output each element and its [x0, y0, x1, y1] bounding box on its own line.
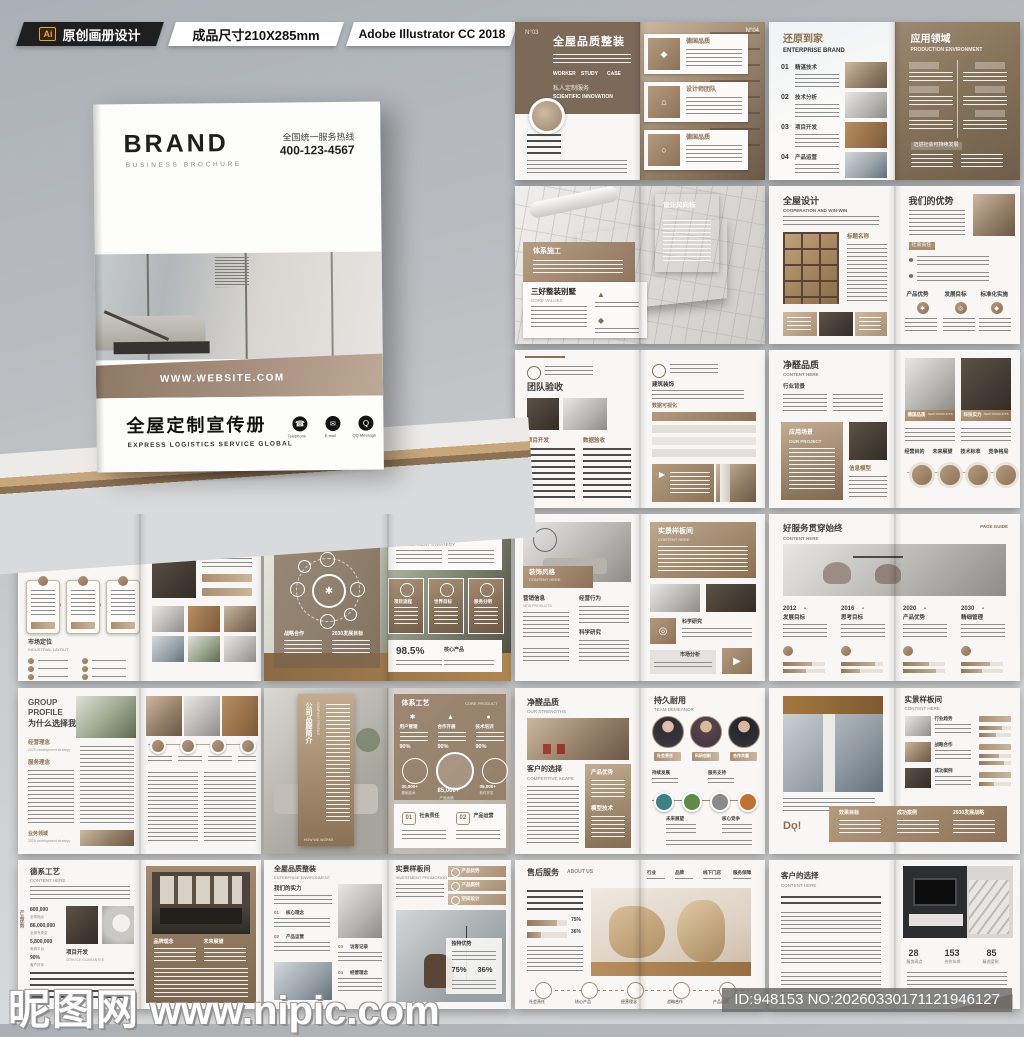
card-title: 设计师团队	[686, 87, 716, 94]
pill-icon	[451, 868, 460, 877]
col-title: 标准化实施	[981, 292, 1009, 298]
page: 28 服务网点 153 合作伙伴 85 精选案例	[895, 860, 1021, 1009]
analysis-card: 市场分析	[650, 650, 716, 674]
stat-label: 全球网点	[30, 915, 44, 919]
box-glyph: ◆	[661, 49, 668, 60]
topbar-software-text: Adobe Illustrator CC 2018	[350, 22, 514, 46]
text-lines	[476, 732, 504, 742]
text-lines	[703, 878, 721, 882]
text-lines	[666, 824, 696, 834]
item-label: 核心理念	[286, 910, 304, 915]
caption-cn: 德国品质	[908, 412, 926, 417]
text-lines	[396, 550, 442, 564]
timeline-axis	[957, 60, 958, 138]
table-header-row	[652, 412, 756, 421]
spread-whole-house-design: 全屋设计 COOPERATION AND WIN-WIN 标题名称 我们的优势 …	[769, 186, 1020, 344]
text-lines	[652, 390, 744, 400]
row-title: 行业趋势	[935, 716, 953, 721]
card-icon	[480, 583, 494, 597]
band-title: 装饰风格	[529, 569, 555, 576]
contact-label-qq: QQ Message	[353, 434, 377, 439]
node	[320, 552, 335, 567]
caption-cn: 科技实力	[964, 412, 982, 417]
advantage-icon: ✱	[917, 302, 929, 314]
pill-icon	[451, 882, 460, 891]
text-lines	[943, 318, 975, 334]
label-pill	[202, 574, 252, 582]
metric-label: 合作开展	[438, 724, 456, 729]
page: 团队验收 项目开发 数据验收	[515, 350, 640, 508]
col-icon	[961, 646, 971, 656]
member-avatar	[728, 716, 760, 748]
stair-steps	[969, 880, 1009, 934]
progress-bar	[903, 662, 945, 666]
col-title: 营销信息	[523, 596, 545, 602]
text-lines	[917, 272, 989, 282]
text-lines	[783, 216, 879, 226]
item-no-hex: 02	[456, 812, 471, 825]
stat-label: 精选案例	[983, 960, 999, 965]
step-ring	[937, 462, 963, 488]
sideboard	[909, 914, 963, 926]
card-title: 项目流程	[394, 599, 412, 604]
metric-label: 用户管理	[400, 724, 418, 729]
table-row	[652, 449, 756, 457]
cover-hotline-number: 400-123-4567	[280, 144, 355, 159]
bullet-dot	[909, 258, 913, 262]
step-avatar	[682, 792, 702, 812]
bubble-pill	[71, 622, 95, 629]
sub-label: 数据可视化	[652, 404, 677, 410]
bubble-card	[66, 580, 100, 634]
page: 应用领域 PRODUCTION ENVIRONMENT 迈进社会可持续发展	[895, 22, 1021, 180]
v-foot: HOW WE WORKS	[304, 838, 333, 842]
sec-title: 客户的选择	[527, 766, 562, 774]
text-lines	[963, 72, 1007, 82]
year-node	[180, 738, 196, 754]
bullet	[28, 674, 34, 680]
title: 德系工艺	[30, 868, 60, 877]
text-lines	[154, 948, 196, 962]
text-lines	[795, 74, 839, 88]
col-title: 数据验收	[583, 438, 605, 444]
text-lines	[783, 624, 827, 640]
step-label: 未来展望	[933, 450, 953, 456]
card-title: 德国品质	[686, 39, 710, 46]
text-lines	[686, 49, 742, 67]
year: 2020	[903, 606, 916, 613]
text-lines	[92, 660, 126, 663]
text-lines	[722, 824, 752, 834]
label-pill	[975, 110, 1005, 117]
step-ring	[993, 462, 1019, 488]
card-title: 独特优势	[452, 942, 472, 948]
project-card: ▶	[652, 464, 714, 502]
title: 售后服务	[527, 868, 559, 877]
bar-label	[979, 772, 1011, 778]
panel-sub: CORE PRODUCT	[465, 702, 497, 707]
shelving-photo	[783, 232, 839, 304]
signature-icon: Dǫ!	[783, 820, 801, 833]
text-lines	[666, 840, 752, 846]
title: 持久耐用	[654, 696, 686, 705]
card-icon	[440, 583, 454, 597]
page: 净醛品质 CONTENT HERE 行业背景 应用场景 OUR PROJECT …	[769, 350, 895, 508]
grid-photo	[188, 636, 220, 662]
text-lines	[38, 676, 68, 679]
progress-bar	[527, 920, 567, 926]
sub-en: SCIENTIFIC INNOVATION	[553, 95, 613, 101]
metric-icon: ●	[484, 712, 494, 722]
feature-card: ⌂ 设计师团队	[644, 82, 748, 122]
text-lines	[148, 756, 172, 764]
text-lines	[28, 770, 74, 826]
title-en2: PROFILE	[28, 708, 63, 717]
blind-slats	[215, 257, 249, 287]
row-photo	[905, 716, 931, 736]
metric-icon: ▲	[446, 712, 456, 722]
sec2: 服务理念	[28, 760, 50, 766]
step-title: 核心竞争	[722, 816, 740, 821]
foot-label: 2030发展目标	[332, 632, 363, 638]
subtitle: CONTENT HERE	[30, 878, 65, 883]
subtitle: ENTERPRISE ENVIRONMENT	[274, 876, 330, 881]
progress-bar	[979, 782, 1011, 786]
text-lines	[31, 590, 55, 616]
text-lines	[935, 724, 971, 736]
text-lines	[527, 160, 627, 174]
badge-circle	[529, 98, 565, 134]
subtitle: CONTENT HERE	[905, 706, 940, 711]
page: 我们的优势 社会责任 产品优势 ✱ 发展目标 ◎ 标准化实施 ◆	[895, 186, 1021, 344]
room-photo	[716, 464, 756, 502]
tan-card	[783, 312, 817, 336]
item-label: 经营理念	[350, 970, 368, 975]
restaurant-photo	[527, 398, 559, 430]
text-lines	[953, 820, 995, 834]
plant	[356, 728, 380, 752]
pill-label: 产品优势	[462, 868, 480, 873]
pct: 75%	[452, 966, 467, 975]
step-title: 服务支持	[708, 770, 726, 775]
text-lines	[238, 756, 256, 764]
section-title: 应用领域	[911, 34, 951, 46]
text-lines	[456, 830, 500, 842]
card-title: 三好整装别墅	[531, 288, 576, 297]
text-lines	[963, 120, 1007, 130]
item-photo	[845, 152, 887, 178]
text-lines	[527, 448, 575, 502]
lobby-photo	[783, 696, 883, 792]
brochure-cover: BRAND BUSINESS BROCHURE 全国统一服务热线 400-123…	[93, 102, 384, 473]
strip-photo	[222, 696, 258, 736]
progress-bar	[527, 932, 567, 938]
subtitle: INVESTMENT PROMOTION	[396, 876, 447, 881]
box-glyph: ◆	[598, 316, 604, 325]
text-lines	[583, 448, 631, 502]
col-title: 科学研究	[579, 630, 601, 636]
text-lines	[591, 816, 625, 840]
gear-glyph: ✱	[325, 586, 333, 597]
page: 还原到家 ENTERPRISE BRAND 01 精湛技术 02 技术分析 03…	[769, 22, 895, 180]
col-label: 产品优势	[903, 615, 925, 621]
text-lines	[396, 884, 444, 898]
text-lines	[781, 942, 881, 964]
text-lines	[897, 820, 939, 834]
item-no: 03	[338, 944, 343, 949]
text-lines	[533, 260, 623, 274]
list-labels	[527, 134, 561, 156]
text-lines	[452, 951, 496, 961]
text-lines	[911, 154, 953, 168]
page: 建筑装饰 数据可视化 ▶	[640, 350, 765, 508]
progress-bar	[961, 662, 1003, 666]
stat-label: 电商平台	[30, 947, 44, 951]
project-panel: 应用场景 OUR PROJECT	[781, 422, 843, 500]
page-guide: PAGE GUIDE	[980, 524, 1008, 529]
strategy-card: 服务分明	[468, 578, 504, 634]
stat-num: 5,800,000	[30, 940, 52, 946]
item-no: 02	[781, 94, 789, 102]
year-marker: ▲	[981, 606, 985, 611]
page: 客户的选择 CONTENT HERE	[769, 860, 895, 1009]
telephone-icon: ☎	[292, 416, 307, 431]
text-lines	[795, 104, 839, 118]
showroom-card: 实景样板间 CONTENT HERE	[650, 522, 756, 578]
spread-customer-choice: 客户的选择 CONTENT HERE 28 服务网点 153 合作伙伴 85 精…	[769, 860, 1020, 1009]
node	[290, 582, 305, 597]
text-lines	[527, 946, 583, 972]
tv-lounge-photo	[903, 866, 1013, 938]
row-title: 成功案例	[935, 768, 953, 773]
cover-brand: BRAND	[123, 129, 229, 159]
item-photo	[845, 92, 887, 118]
pill-label: 合作共赢	[733, 754, 749, 759]
row-label: 科学研究	[682, 620, 702, 626]
grid-photo	[152, 636, 184, 662]
feature-card: ○ 德国品质	[644, 130, 748, 170]
cover-website: WWW.WEBSITE.COM	[160, 373, 285, 386]
spread-clean-quality: 净醛品质 CONTENT HERE 行业背景 应用场景 OUR PROJECT …	[769, 350, 1020, 508]
bubble-icon	[78, 576, 88, 586]
pill-label: 空间设计	[462, 896, 480, 901]
ring-glyph: ○	[661, 145, 666, 155]
item-label: 精湛技术	[795, 65, 817, 71]
dot-glyph: ●	[486, 714, 490, 721]
core-panel: 体系工艺 CORE PRODUCT ✱ 用户管理 90% ▲ 合作开展 90% …	[394, 694, 506, 800]
item-no: 04	[781, 154, 789, 162]
standard-icon: ◆	[991, 302, 1003, 314]
vertical-label: 产品优势	[20, 910, 25, 928]
text-lines	[961, 428, 1011, 442]
subtitle: TEAM DEMEANOR	[654, 707, 694, 712]
email-glyph: ✉	[330, 419, 336, 427]
text-lines	[274, 895, 332, 905]
page: 实景样板间 CONTENT HERE ◎ 科学研究 市场分析 ▶	[640, 514, 765, 681]
armchair	[823, 562, 851, 584]
item-photo	[845, 122, 887, 148]
text-lines	[595, 328, 639, 334]
sec3: 业务领域	[28, 832, 48, 838]
send-card: ▶	[722, 648, 752, 674]
card-sub: MESSAGE	[663, 212, 683, 217]
text-lines	[111, 590, 135, 616]
shelf-grid	[783, 232, 839, 304]
text-lines	[686, 97, 742, 115]
cover-brand-sub: BUSINESS BROCHURE	[126, 161, 242, 170]
classical-room-photo	[152, 872, 250, 934]
band-col: 效果目标	[839, 811, 859, 817]
red-chair	[557, 744, 565, 754]
construction-band: 体系施工	[523, 242, 635, 282]
text-lines	[523, 648, 569, 662]
sec2-label: 信息模型	[849, 466, 871, 472]
text-lines	[909, 96, 953, 106]
strategy-card: 项目流程	[388, 578, 424, 634]
window-frame	[331, 252, 334, 358]
armchair	[875, 564, 901, 584]
spread-company-profile: 公司品牌简介 COMPANY PROFILE HOW WE WORKS 体系工艺…	[264, 688, 511, 854]
arrow-icon: ▶	[656, 468, 668, 480]
tvwall-photo	[961, 358, 1011, 410]
section-title: 全屋品质整装	[553, 36, 625, 49]
pct: 36%	[571, 930, 581, 936]
page: 德国品质 NEW PRODUCTS 科技实力 NEW PRODUCTS 经营目的…	[895, 350, 1021, 508]
spread-team-acceptance: 团队验收 项目开发 数据验收 建筑装饰 数据可视化 ▶	[515, 350, 765, 508]
col-title: 品牌理念	[154, 940, 174, 946]
text-lines	[961, 154, 1003, 168]
row-label: 市场分析	[680, 653, 700, 659]
stat-label: 全球专卖店	[30, 931, 48, 935]
item-no: 01	[274, 910, 279, 915]
text-lines	[284, 640, 322, 656]
step-title: 持续发展	[652, 770, 670, 775]
text-lines	[903, 624, 947, 640]
stat-label: 服务网点	[907, 960, 923, 965]
table-row	[652, 437, 756, 445]
wall-art	[533, 528, 557, 552]
stat-num: 85	[987, 948, 997, 958]
progress-bar	[783, 669, 825, 673]
node	[350, 582, 365, 597]
topbar-title-group: Ai 原创画册设计	[20, 22, 160, 46]
year: 2030	[961, 606, 974, 613]
caption-bar: 科技实力 NEW PRODUCTS	[961, 410, 1011, 421]
spread-enterprise-brand: 还原到家 ENTERPRISE BRAND 01 精湛技术 02 技术分析 03…	[769, 22, 1020, 180]
text-lines	[686, 145, 742, 163]
spread-good-service: 好服务贯穿始终 CONTENT HERE PAGE GUIDE 2012 ▲ 发…	[769, 514, 1020, 681]
header-rule	[525, 356, 565, 358]
text-lines	[178, 756, 202, 764]
progress-bar	[783, 662, 825, 666]
grid-photo	[224, 606, 256, 632]
title-en1: GROUP	[28, 698, 57, 707]
text-lines	[905, 428, 955, 442]
col-title: 项目开发	[527, 438, 549, 444]
designer-icon: ⌂	[648, 86, 680, 118]
page: 净醛品质 OUR STRENGTHS 客户的选择 COMPETITIVE SCA…	[515, 688, 640, 854]
text-lines	[961, 624, 1005, 640]
label-pill	[909, 86, 939, 93]
title: 好服务贯穿始终	[783, 524, 843, 534]
pillar	[823, 714, 835, 792]
spread-quality-assembly: N°03 全屋品质整装 WORKER STUDY CASE 私人定制服务 SCI…	[515, 22, 765, 180]
section-sub: CONTENT HERE	[783, 372, 819, 377]
studio-photo	[563, 398, 607, 430]
ai-app-icon: Ai	[39, 27, 56, 41]
stat-num: 800,000	[30, 908, 48, 914]
service-label: 核心产品	[575, 1000, 591, 1005]
col-title: 产品优势	[907, 292, 929, 298]
text-lines	[652, 778, 678, 786]
node	[344, 608, 357, 621]
tv-screen	[913, 878, 957, 906]
text-lines	[670, 364, 718, 374]
row-title: 战略合作	[935, 742, 953, 747]
panel-label: 模型技术	[591, 806, 613, 812]
bubble-pill	[31, 622, 55, 629]
v-title: 公司品牌简介	[304, 702, 312, 744]
year: 2012	[783, 606, 796, 613]
text-lines	[394, 607, 418, 627]
sub-label: 建筑装饰	[652, 382, 674, 388]
bubble-icon	[118, 576, 128, 586]
text-lines	[783, 394, 827, 414]
value-icon: ◆	[595, 314, 607, 326]
service-icon	[535, 982, 552, 999]
year-marker: ▲	[861, 606, 865, 611]
service-icon	[673, 982, 690, 999]
page: GROUP PROFILE 为什么选择我们 经营理念 2025 developm…	[18, 688, 140, 854]
page	[140, 688, 262, 854]
title: 全屋品质整装	[274, 866, 316, 874]
nipic-watermark: 昵图网 www.nipic.com	[8, 976, 440, 1037]
text-lines	[531, 306, 587, 330]
text-lines	[204, 948, 246, 962]
text-lines	[647, 878, 665, 882]
stage-photo	[849, 422, 887, 460]
text-lines	[71, 590, 95, 616]
stat-num: 30,000+	[402, 784, 418, 789]
bullet	[82, 674, 88, 680]
sec-title: 项目开发	[66, 950, 88, 956]
service-label: 经营理念	[621, 1000, 637, 1005]
dining-photo	[973, 194, 1015, 236]
text-lines	[338, 952, 382, 962]
send-glyph: ▶	[659, 470, 665, 479]
spread-durability: 净醛品质 OUR STRENGTHS 客户的选择 COMPETITIVE SCA…	[515, 688, 765, 854]
curved-pod	[677, 900, 725, 962]
pill-icon	[451, 896, 460, 905]
stat-footer: 98.5% 核心产品	[388, 640, 502, 672]
chevron: ›	[59, 600, 62, 609]
text-lines	[274, 942, 330, 954]
sec1: 经营理念	[28, 740, 50, 746]
service-label: 战略合作	[667, 1000, 683, 1005]
progress-bar	[979, 761, 1011, 765]
cover-hotline-label: 全国统一服务热线	[282, 132, 354, 143]
text-lines	[208, 756, 232, 764]
stat-num: 153	[945, 948, 960, 958]
card-icon	[400, 583, 414, 597]
col-icon	[903, 646, 913, 656]
card-title: 德国品质	[686, 135, 710, 142]
caption-en: NEW PRODUCTS	[928, 413, 953, 416]
step-avatar	[738, 792, 758, 812]
page: N°04 ◆ 德国品质 ⌂ 设计师团队 ○ 德国品质	[640, 22, 765, 180]
spread-decor-style: 装饰风格 CONTENT HERE 营销信息 NEW PRODUCTS 经营行为…	[515, 514, 765, 681]
value-icon: ▲	[595, 288, 607, 300]
